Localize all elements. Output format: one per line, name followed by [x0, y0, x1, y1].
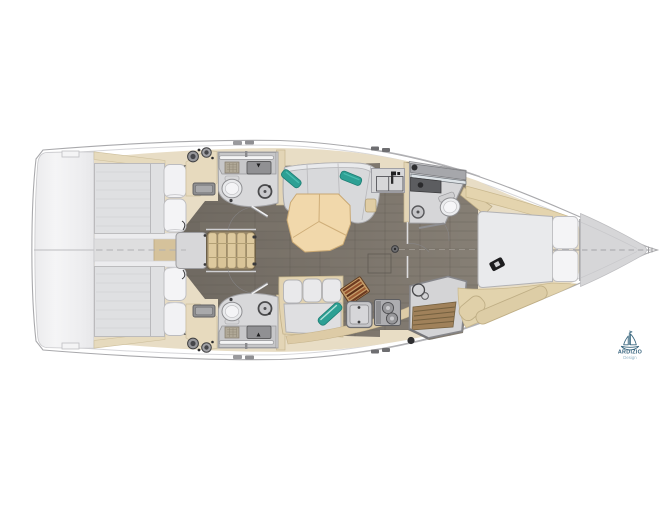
svg-text:Design: Design — [623, 355, 637, 360]
